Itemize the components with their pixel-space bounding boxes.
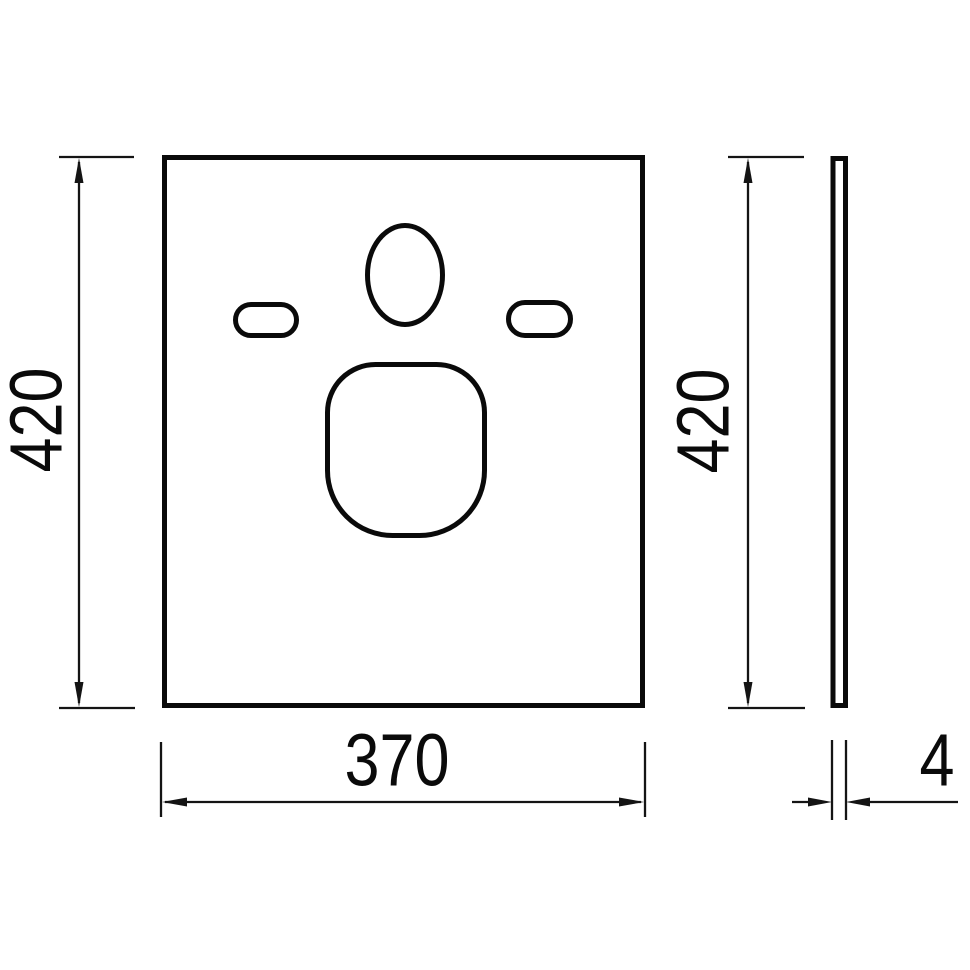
oval-hole	[368, 226, 443, 325]
arrowhead-down-icon	[75, 682, 84, 707]
front-view	[165, 158, 643, 706]
side-plate-outline	[833, 159, 846, 706]
left-slot-hole	[236, 305, 297, 336]
arrowhead-up-icon	[75, 158, 84, 183]
width-dimension: 370	[161, 719, 645, 817]
seat-cutout	[328, 365, 485, 536]
technical-drawing: 420 370 420	[0, 0, 970, 970]
arrowhead-down-icon	[744, 682, 753, 707]
front-height-label: 420	[0, 368, 77, 473]
front-plate-outline	[165, 158, 643, 706]
front-width-label: 370	[345, 719, 450, 802]
technical-drawing-page: 420 370 420	[0, 0, 970, 970]
arrowhead-left-icon	[846, 798, 870, 807]
side-view	[833, 159, 846, 706]
side-height-label: 420	[662, 369, 745, 474]
height-dimension-right: 420	[662, 157, 805, 708]
arrowhead-right-icon	[619, 798, 644, 807]
height-dimension-left: 420	[0, 157, 135, 708]
thickness-dimension: 4	[792, 719, 958, 820]
arrowhead-right-icon	[808, 798, 832, 807]
side-thickness-label: 4	[920, 719, 955, 802]
right-slot-hole	[509, 303, 571, 336]
arrowhead-up-icon	[744, 158, 753, 183]
arrowhead-left-icon	[162, 798, 187, 807]
